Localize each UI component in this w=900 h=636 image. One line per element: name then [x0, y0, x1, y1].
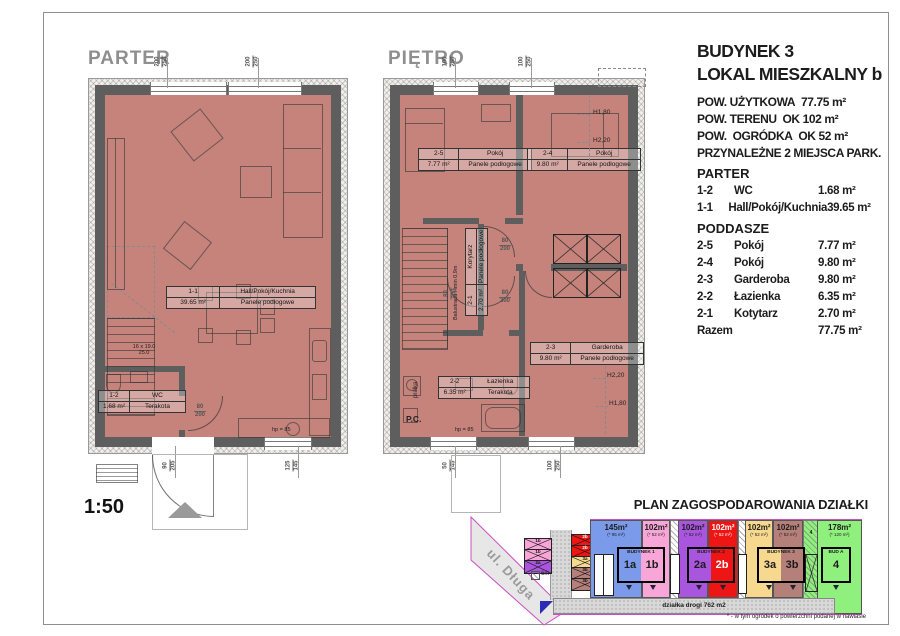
room-code: 1-2 [99, 391, 130, 402]
building-2: BUDYNEK 2 2a 2b [687, 547, 735, 583]
room-code: 2-4 [528, 149, 568, 160]
entrance-marker [650, 585, 656, 590]
kitchen-stove [312, 374, 327, 400]
building-name: BUD A [823, 550, 849, 555]
legend-row: 2-5 Pokój 7.77 m² [697, 238, 877, 255]
direction-marker [540, 601, 553, 614]
parcel-garden-area: (* 52 m²) [679, 532, 707, 538]
spec-garden-area: POW. OGRÓDKA OK 52 m² [697, 128, 877, 145]
furniture-sofa-cushion-line-1 [283, 148, 321, 149]
room-finish: Panele podłogowe [477, 229, 487, 284]
parter-window-top-2 [228, 82, 302, 95]
parcel-area: 178m² [818, 521, 861, 532]
wc-wall-right-lower [179, 430, 185, 437]
parter-plan: 1-1Hall/Pokój/Kuchnia 39.65 m²Panele pod… [88, 78, 348, 454]
siteplan: ul. Długa 1b 1b 2a 2b 2b 3a 3b 3b 6m 145… [468, 514, 870, 626]
room-label-r22: 2-2Łazienka 6.35 m²Terakota [438, 376, 530, 399]
room-name: Łazienka [471, 377, 529, 388]
furniture-sofa [283, 104, 323, 238]
legend-total-row: Razem 77.75 m² [697, 323, 877, 340]
room-label-r24: 2-4Pokój 9.80 m²Panele podłogowe [527, 148, 641, 171]
parter-dim-top-1: 200250 [155, 55, 170, 67]
room-area: 9.80 m² [528, 160, 568, 170]
legend-area: 6.35 m² [818, 289, 877, 306]
spec-terrain-area: POW. TERENU OK 102 m² [697, 111, 877, 128]
entrance-arrow [168, 502, 202, 518]
height-label-bottom-2: H1,80 [609, 400, 626, 407]
stairs-note: 16 x 19.0 25.0 [122, 344, 166, 356]
room-name: Pokój [459, 149, 531, 160]
room-finish: Panele podłogowe [220, 298, 315, 308]
furniture-sofa-cushion-line-2 [283, 192, 321, 193]
pietro-stairs [402, 228, 448, 350]
wall-bath-top-a [443, 330, 483, 336]
building-name: BUDYNEK 2 [689, 550, 733, 555]
room-area: 2.70 m² [477, 284, 487, 315]
legend-name: WC [734, 183, 818, 200]
legend-row: 2-3 Garderoba 9.80 m² [697, 272, 877, 289]
height-tick [577, 142, 589, 143]
legend-code: 1-1 [697, 200, 728, 217]
info-panel: BUDYNEK 3 LOKAL MIESZKALNY b POW. UŻYTKO… [697, 40, 877, 340]
room-finish: Panele podłogowe [571, 354, 643, 364]
room-label-r25: 2-5Pokój 7.77 m²Panele podłogowe [418, 148, 532, 171]
pralka-label: pralka [413, 382, 419, 398]
entrance-marker [790, 585, 796, 590]
room-finish: Terakota [130, 402, 185, 412]
room-name: Garderoba [571, 343, 643, 354]
legend-code: 2-2 [697, 289, 734, 306]
entrance-marker [626, 585, 632, 590]
parter-dim-top-2: 200250 [246, 55, 261, 67]
scale-label: 1:50 [84, 496, 124, 519]
height-tick [593, 378, 605, 379]
parking-xbox [670, 554, 680, 594]
legend-row: 1-1 Hall/Pokój/Kuchnia 39.65 m² [697, 200, 877, 217]
wardrobe-r23-1 [553, 268, 588, 298]
parking-xbox [738, 554, 747, 594]
pietro-dim-top-1: 100250 [443, 55, 458, 67]
unit-label-1a: 1a [619, 559, 641, 571]
boundary-line-top [590, 519, 862, 520]
building-name: BUDYNEK 3 [759, 550, 803, 555]
entrance-marker [696, 585, 702, 590]
wc-door-dimension: 80200 [194, 404, 206, 419]
pietro-window-top-1 [433, 82, 479, 95]
legend-section-poddasze: PODDASZE [697, 220, 877, 238]
room-name: Pokój [568, 149, 640, 160]
room-finish: Panele podłogowe [459, 160, 531, 170]
porch-roof-outline [451, 455, 501, 513]
furniture-chair-4 [236, 330, 251, 345]
furniture-wardrobe [107, 138, 125, 290]
wall-r25-bottom-a [423, 218, 479, 224]
pietro-dim-bottom-2: 100250 [548, 459, 563, 471]
entrance-door-leaf [213, 455, 214, 516]
legend-code: 2-5 [697, 238, 734, 255]
room-area: 6.35 m² [439, 388, 471, 398]
legend-name: Łazienka [734, 289, 818, 306]
height-line-bottom [605, 366, 606, 434]
wardrobe-r24-1 [553, 234, 588, 264]
room-area: 9.80 m² [531, 354, 571, 364]
pc-label: P.C. [406, 414, 421, 424]
height-label-top-1: H1,80 [593, 109, 610, 116]
legend-name: Pokój [734, 238, 818, 255]
building-3: BUDYNEK 3 3a 3b [757, 547, 805, 583]
unit-label-3b: 3b [781, 559, 803, 571]
legend-total-label: Razem [697, 323, 818, 340]
parcel-garden-area: (* 52 m²) [746, 532, 772, 538]
furniture-desk-r25 [481, 104, 511, 122]
building-name: BUDYNEK 1 [619, 550, 663, 555]
unit-title: LOKAL MIESZKALNY b [697, 63, 877, 86]
parcel-garden-area: (* 52 m²) [709, 532, 737, 538]
legend-code: 2-3 [697, 272, 734, 289]
parter-entrance-opening [152, 437, 214, 454]
access-road: działka drogi 762 m2 [553, 598, 835, 614]
wc-basin [130, 371, 148, 383]
room-code: 2-5 [419, 149, 459, 160]
exterior-unit [96, 464, 138, 483]
legend-name: Kotytarz [734, 306, 818, 323]
building-title: BUDYNEK 3 [697, 40, 877, 63]
furniture-bed-r25-pillow-line [405, 123, 443, 124]
legend-area: 7.77 m² [818, 238, 877, 255]
parking-xbox [603, 554, 614, 596]
building-a: BUD A 4 [821, 547, 851, 583]
unit-label-2a: 2a [689, 559, 711, 571]
wardrobe-r23-2 [586, 268, 621, 298]
room-name: Korytarz [466, 229, 477, 284]
pietro-plan: Balustrada Hmin 0,9m 2-5Pokój 7.77 m²Pan… [383, 78, 645, 454]
parcel-area: 102m² [643, 521, 669, 532]
height-label-bottom-1: H2,20 [607, 372, 624, 379]
parcel-area: 145m² [591, 521, 641, 532]
legend-code: 1-2 [697, 183, 734, 200]
pietro-dim-top-2: 100250 [519, 55, 534, 67]
parcel-garden-area: (* 120 m²) [818, 532, 861, 538]
entrance-marker [833, 585, 839, 590]
legend-row: 1-2 WC 1.68 m² [697, 183, 877, 200]
unit-label-1b: 1b [641, 559, 663, 571]
height-tick [596, 406, 608, 407]
legend-name: Hall/Pokój/Kuchnia [728, 200, 827, 217]
pietro-window-bottom-1 [430, 437, 477, 450]
parcel-garden-area: (* 52 m²) [643, 532, 669, 538]
parter-hp-label: hp = 85 [272, 427, 291, 433]
door-dim-3: 80200 [444, 287, 459, 299]
parking-xbox [805, 554, 818, 592]
room-label-r21-rotated: 2-1Korytarz 2.70 m²Panele podłogowe [465, 228, 488, 316]
parter-dim-bottom-2: 125145 [286, 459, 301, 471]
spec-parking: PRZYNALEŻNE 2 MIEJSCA PARK. [697, 145, 877, 162]
legend-area: 9.80 m² [818, 255, 877, 272]
unit-label-2b: 2b [711, 559, 733, 571]
parcel-area: 102m² [679, 521, 707, 532]
legend-name: Pokój [734, 255, 818, 272]
wall-r24-bottom-a [516, 264, 523, 271]
pietro-window-bottom-2 [528, 437, 575, 450]
legend-row: 2-4 Pokój 9.80 m² [697, 255, 877, 272]
room-code: 2-2 [439, 377, 471, 388]
parcel-area: 102m² [709, 521, 737, 532]
room-code: 2-1 [466, 284, 477, 315]
driveway [550, 530, 572, 600]
room-area: 1.68 m² [99, 402, 130, 412]
strip-unit-label: 4 [810, 530, 813, 536]
parcel-area: 102m² [746, 521, 772, 532]
stairs-note-line2: 25.0 [139, 350, 150, 356]
legend-row: 2-1 Kotytarz 2.70 m² [697, 306, 877, 323]
room-area: 39.65 m² [167, 298, 220, 308]
room-code: 2-3 [531, 343, 571, 354]
siteplan-title: PLAN ZAGOSPODAROWANIA DZIAŁKI [560, 497, 868, 512]
parcel-garden-area: (* 52 m²) [774, 532, 802, 538]
room-finish: Panele podłogowe [568, 160, 640, 170]
legend-area: 9.80 m² [818, 272, 877, 289]
parcel-area: 102m² [774, 521, 802, 532]
legend-code: 2-4 [697, 255, 734, 272]
siteplan-footnote: * - w tym ogródek o powierzchni podanej … [620, 614, 866, 620]
height-line-top [589, 95, 590, 161]
parter-window-bottom [264, 437, 312, 450]
legend-area: 1.68 m² [818, 183, 877, 200]
legend-section-parter: PARTER [697, 165, 877, 183]
parter-window-top-1 [150, 82, 227, 95]
room-label-wc: 1-2WC 1.68 m²Terakota [98, 390, 186, 413]
room-label-r23: 2-3Garderoba 9.80 m²Panele podłogowe [530, 342, 644, 365]
wall-r25-bottom-b [505, 218, 523, 224]
height-label-top-2: H2,20 [593, 137, 610, 144]
floor-plan-sheet: { "scale_label": "1:50", "colors": { "fl… [0, 0, 900, 636]
height-tick [577, 114, 589, 115]
kitchen-sink [312, 340, 327, 362]
unit-label-4: 4 [823, 559, 849, 571]
roof-outline-dashed [598, 68, 646, 87]
road-label: działka drogi 762 m2 [554, 599, 834, 613]
furniture-chair-6 [260, 318, 275, 333]
room-code: 1-1 [167, 287, 220, 298]
spec-usable-area: POW. UŻYTKOWA 77.75 m² [697, 94, 877, 111]
unit-label-3a: 3a [759, 559, 781, 571]
legend-name: Garderoba [734, 272, 818, 289]
legend-row: 2-2 Łazienka 6.35 m² [697, 289, 877, 306]
room-label-hall: 1-1Hall/Pokój/Kuchnia 39.65 m²Panele pod… [166, 286, 316, 309]
room-name: WC [130, 391, 185, 402]
legend-code: 2-1 [697, 306, 734, 323]
wardrobe-r24-2 [586, 234, 621, 264]
room-name: Hall/Pokój/Kuchnia [220, 287, 315, 298]
width-marker-icon [531, 571, 540, 580]
room-finish: Terakota [471, 388, 529, 398]
door-dim-1: 80200 [499, 238, 511, 253]
furniture-coffee-table [240, 166, 272, 198]
parcel-garden-area: (* 95 m²) [591, 532, 641, 538]
entrance-marker [766, 585, 772, 590]
building-1: BUDYNEK 1 1a 1b [617, 547, 665, 583]
entrance-marker [720, 585, 726, 590]
road-width-label: 6m [541, 571, 549, 577]
furniture-chair-3 [198, 328, 213, 343]
furniture-wardrobe-line [115, 138, 116, 288]
legend-area: 39.65 m² [827, 200, 877, 217]
door-dim-2: 80200 [499, 290, 511, 305]
room-area: 7.77 m² [419, 160, 459, 170]
legend-total-area: 77.75 m² [818, 323, 877, 340]
bath-tub-inner [485, 407, 521, 429]
legend-area: 2.70 m² [818, 306, 877, 323]
pietro-window-top-2 [509, 82, 555, 95]
pietro-hp-label: hp = 85 [455, 427, 474, 433]
